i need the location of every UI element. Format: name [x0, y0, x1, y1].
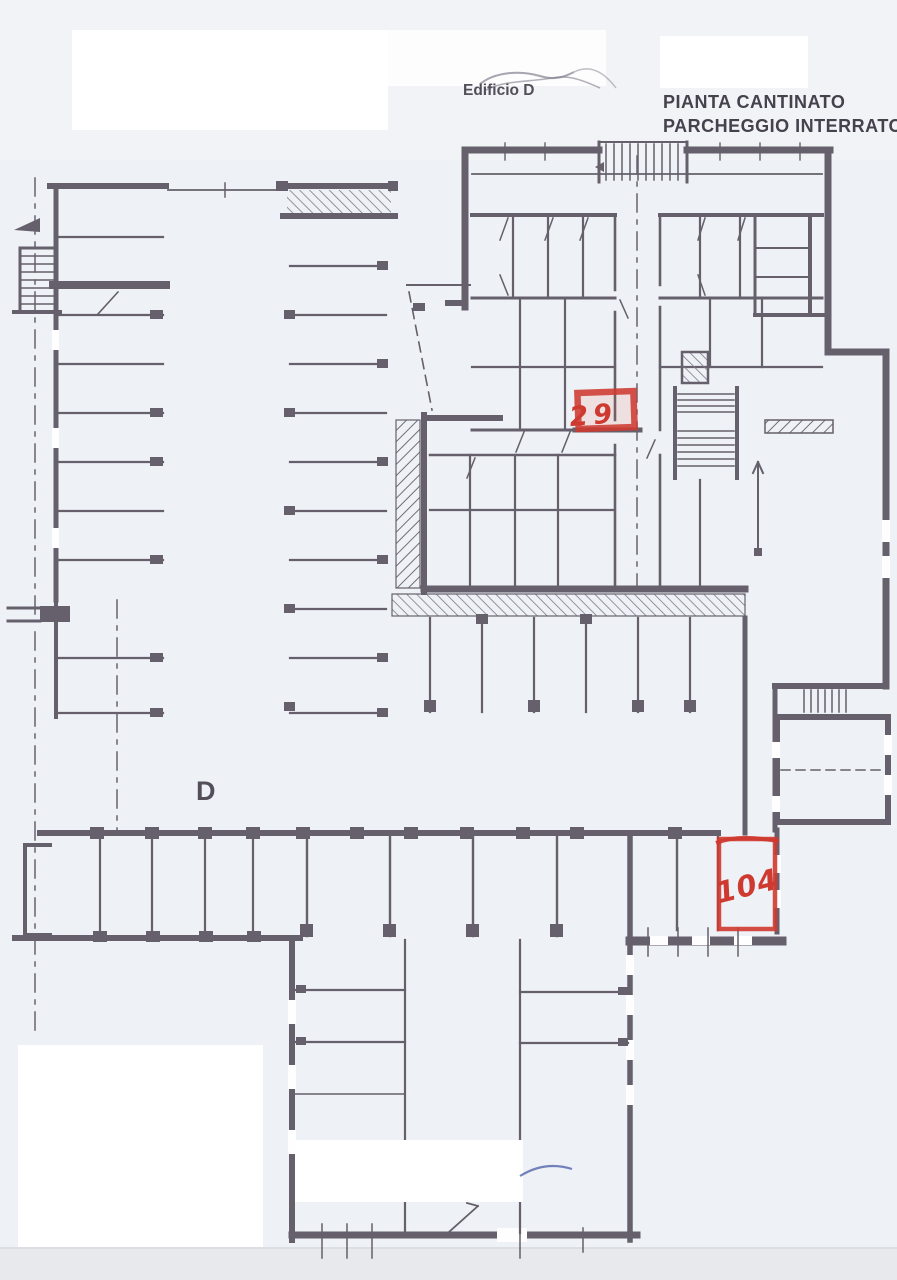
scanned-floor-plan-page: Edificio D PIANTA CANTINATO PARCHEGGIO I… — [0, 0, 897, 1280]
redaction-box-top-left — [72, 30, 388, 130]
zone-label-d: D — [196, 776, 216, 806]
building-label: Edificio D — [463, 82, 534, 99]
highlight-cellar-29: 29 — [568, 391, 634, 433]
floor-plan-drawing: Edificio D PIANTA CANTINATO PARCHEGGIO I… — [0, 0, 897, 1280]
redaction-box-bottom-left — [18, 1045, 263, 1247]
redaction-box-bottom-center — [295, 1140, 523, 1202]
plan-title-line1: PIANTA CANTINATO — [663, 92, 845, 112]
cellar-29-number: 29 — [568, 398, 618, 433]
redaction-box-top-right — [660, 36, 808, 88]
plan-title-line2: PARCHEGGIO INTERRATO — [663, 116, 897, 136]
